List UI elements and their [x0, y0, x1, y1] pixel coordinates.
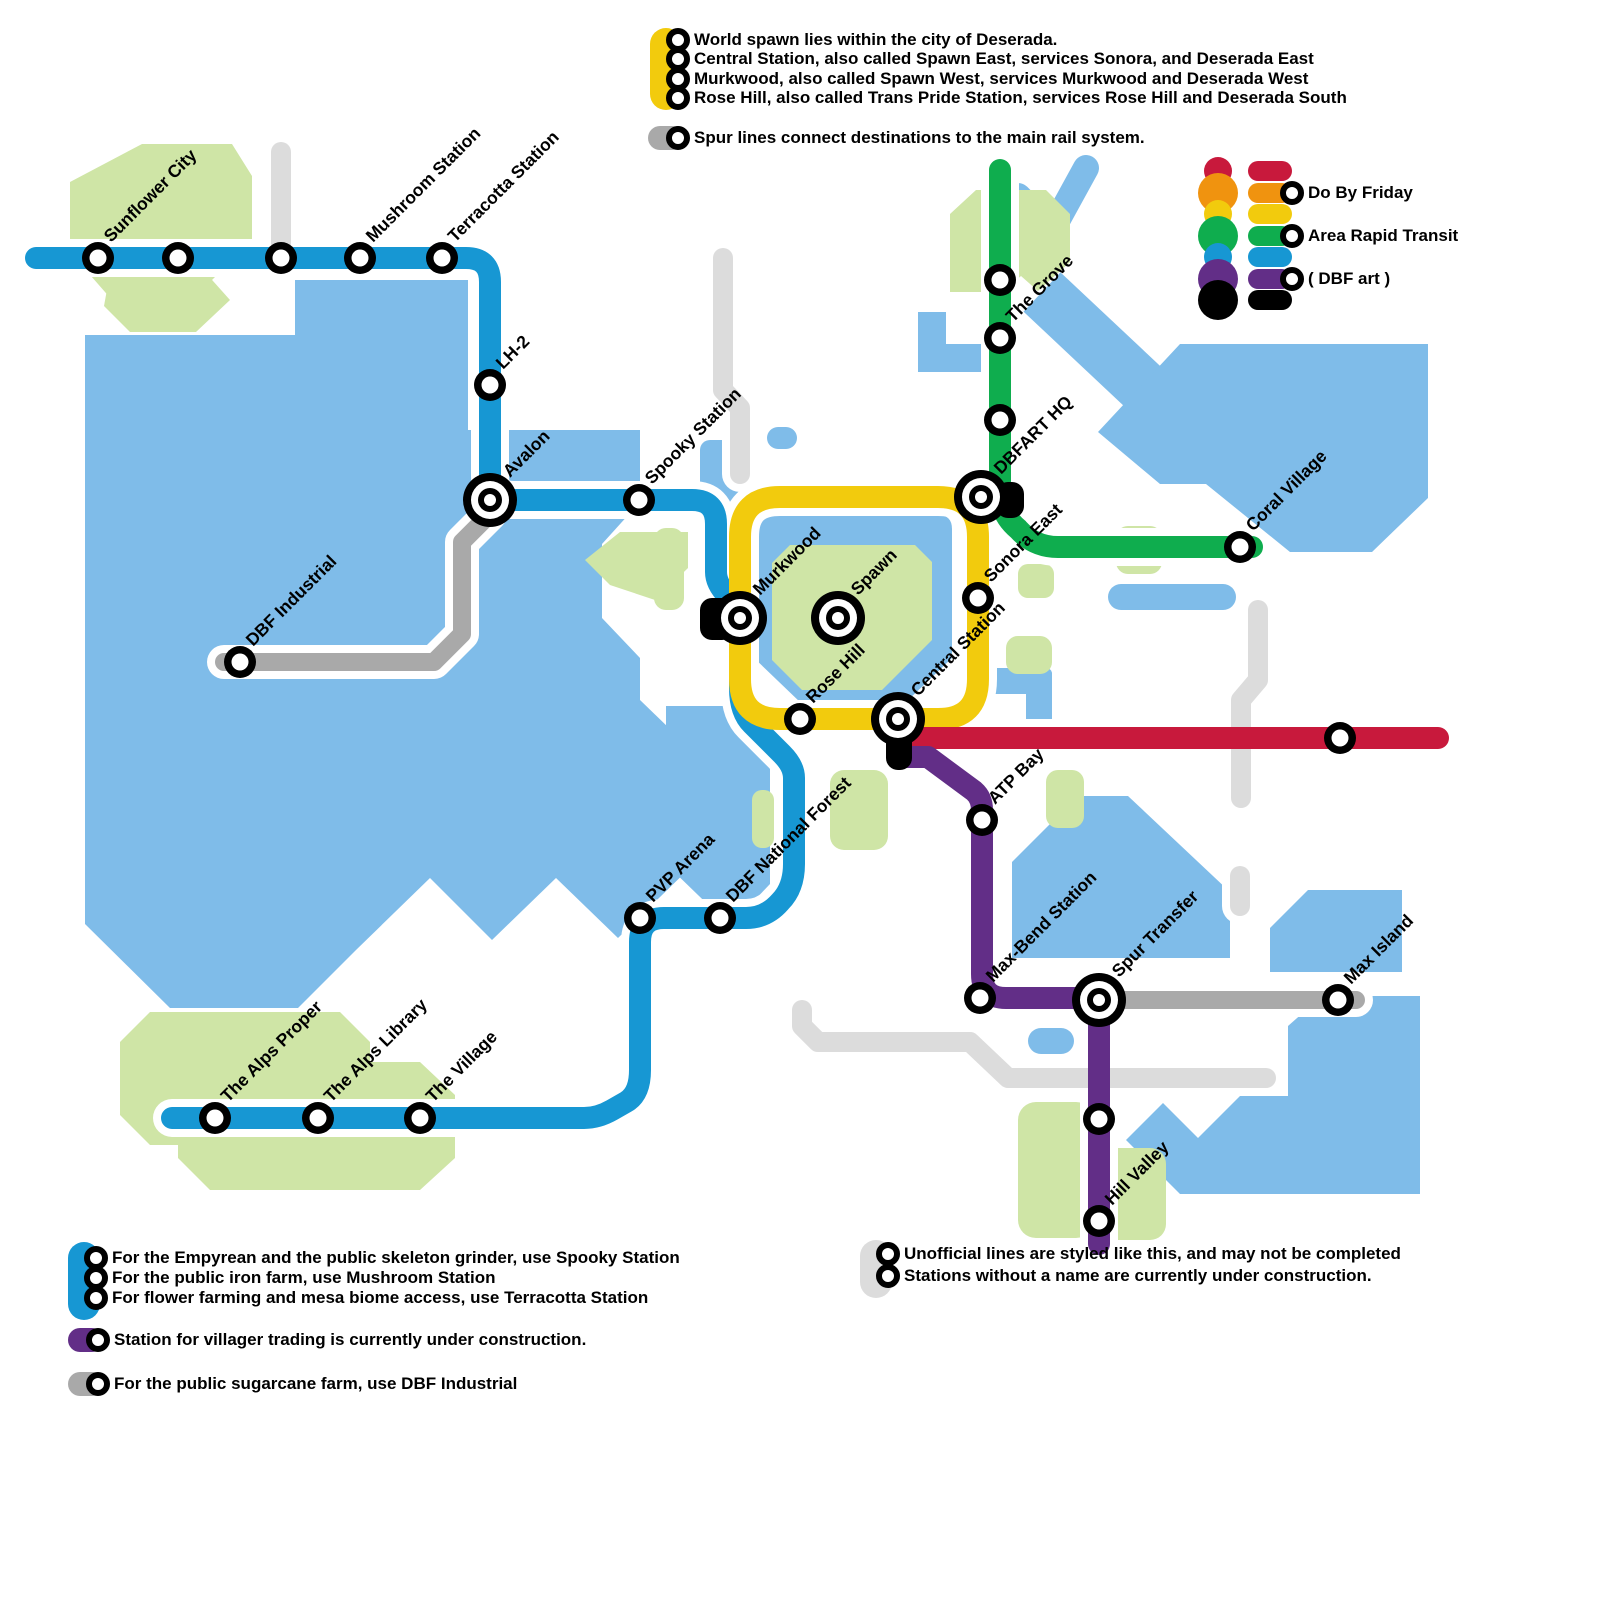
station-dbf-industrial — [224, 646, 256, 678]
note-text: World spawn lies within the city of Dese… — [694, 30, 1057, 50]
station-atp-bay — [966, 804, 998, 836]
note-empyrean: For the Empyrean and the public skeleton… — [84, 1248, 680, 1268]
legend-flag-bar — [1248, 161, 1292, 181]
station-max-island — [1322, 984, 1354, 1016]
station-murkwood — [713, 591, 767, 645]
note-text: For the public sugarcane farm, use DBF I… — [114, 1374, 517, 1394]
legend-flag-bar — [1248, 204, 1292, 224]
station-the-village — [404, 1102, 436, 1134]
note-text: For the public iron farm, use Mushroom S… — [112, 1268, 495, 1288]
station-rose-hill — [784, 703, 816, 735]
note-central-station: Central Station, also called Spawn East,… — [666, 49, 1314, 69]
legend-label: ( DBF art ) — [1308, 269, 1390, 289]
landmass-pill — [1028, 1028, 1074, 1054]
station-lh-2 — [474, 369, 506, 401]
station-dbfart-hq — [954, 470, 1008, 524]
station-dot-icon — [86, 1328, 110, 1352]
note-text: Murkwood, also called Spawn West, servic… — [694, 69, 1308, 89]
legend-flag-bar — [1248, 290, 1292, 310]
station-coral-village — [1224, 531, 1256, 563]
station-sunflower-city — [82, 242, 114, 274]
note-text: Unofficial lines are styled like this, a… — [904, 1244, 1401, 1264]
station-unnamed — [265, 242, 297, 274]
station-the-alps-library — [302, 1102, 334, 1134]
station-dot-icon — [1280, 181, 1304, 205]
landmass-big-west — [85, 280, 700, 1008]
station-spooky-station — [623, 484, 655, 516]
note-text: For the Empyrean and the public skeleton… — [112, 1248, 680, 1268]
station-dot-icon — [666, 126, 690, 150]
station-unnamed — [1083, 1103, 1115, 1135]
station-unnamed — [1324, 722, 1356, 754]
station-label: The Village — [422, 1026, 501, 1105]
note-sugarcane-farm: For the public sugarcane farm, use DBF I… — [86, 1374, 517, 1394]
note-spur-lines: Spur lines connect destinations to the m… — [666, 128, 1145, 148]
station-max-bend-station — [964, 982, 996, 1014]
station-unnamed — [162, 242, 194, 274]
note-text: For flower farming and mesa biome access… — [112, 1288, 648, 1308]
legend-label: Area Rapid Transit — [1308, 226, 1458, 246]
station-dbf-national-forest — [704, 902, 736, 934]
station-avalon — [463, 473, 517, 527]
station-spawn — [811, 591, 865, 645]
green-east2 — [1018, 564, 1054, 598]
note-text: Central Station, also called Spawn East,… — [694, 49, 1314, 69]
station-pvp-arena — [624, 902, 656, 934]
station-the-alps-proper — [199, 1102, 231, 1134]
station-dot-icon — [1280, 267, 1304, 291]
note-unofficial-lines: Unofficial lines are styled like this, a… — [876, 1244, 1401, 1264]
note-villager-trading: Station for villager trading is currentl… — [86, 1330, 586, 1350]
note-text: Rose Hill, also called Trans Pride Stati… — [694, 88, 1347, 108]
green-loop-west — [654, 528, 684, 610]
note-world-spawn: World spawn lies within the city of Dese… — [666, 30, 1057, 50]
note-text: Stations without a name are currently un… — [904, 1266, 1372, 1286]
landmass-strip — [1108, 584, 1236, 610]
legend-flag-circle — [1198, 280, 1238, 320]
station-dot-icon — [84, 1286, 108, 1310]
legend-label: Do By Friday — [1308, 183, 1413, 203]
station-dot-icon — [1280, 224, 1304, 248]
station-terracotta-station — [426, 242, 458, 274]
station-dot-icon — [86, 1372, 110, 1396]
station-central-station — [871, 692, 925, 746]
station-dot-icon — [876, 1242, 900, 1266]
note-flower-farming: For flower farming and mesa biome access… — [84, 1288, 648, 1308]
station-unnamed — [984, 404, 1016, 436]
legend-flag-bar — [1248, 247, 1292, 267]
green-atp1 — [1046, 770, 1084, 828]
station-unnamed — [984, 264, 1016, 296]
station-spur-transfer — [1072, 973, 1126, 1027]
station-hill-valley — [1083, 1205, 1115, 1237]
landmass-bar2 — [767, 427, 797, 449]
note-text: Station for villager trading is currentl… — [114, 1330, 586, 1350]
green-east1 — [1006, 636, 1052, 674]
station-mushroom-station — [344, 242, 376, 274]
note-unnamed-stations: Stations without a name are currently un… — [876, 1266, 1372, 1286]
station-dot-icon — [666, 86, 690, 110]
note-murkwood: Murkwood, also called Spawn West, servic… — [666, 69, 1308, 89]
green-sliver — [752, 790, 774, 848]
note-rose-hill: Rose Hill, also called Trans Pride Stati… — [666, 88, 1347, 108]
note-text: Spur lines connect destinations to the m… — [694, 128, 1145, 148]
note-iron-farm: For the public iron farm, use Mushroom S… — [84, 1268, 495, 1288]
station-dot-icon — [876, 1264, 900, 1288]
transit-map-page: Sunflower CityMushroom StationTerracotta… — [0, 0, 1600, 1600]
station-the-grove — [984, 322, 1016, 354]
